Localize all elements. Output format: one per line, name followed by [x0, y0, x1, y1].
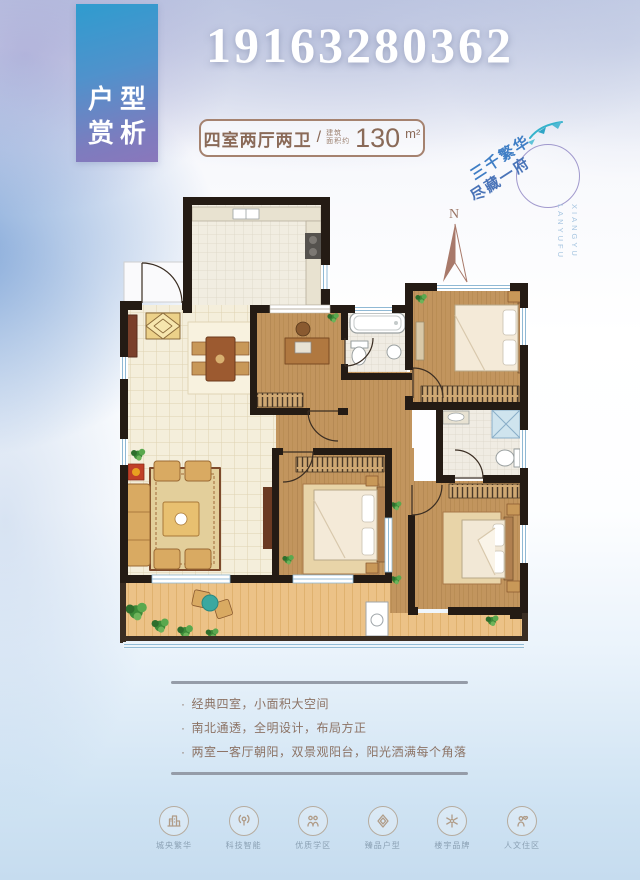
- divider-slash: /: [317, 129, 321, 147]
- area-value: 130: [355, 123, 400, 154]
- north-compass: N: [443, 207, 467, 282]
- wardrobe: [296, 457, 384, 472]
- window-kitchen: [321, 265, 330, 289]
- city-icon: [159, 806, 189, 836]
- window-bedroom-tr-right: [520, 308, 528, 345]
- unit-layout-label: 四室两厅两卫: [204, 126, 312, 151]
- compass-needle-light: [455, 224, 467, 282]
- window-living-left: [120, 439, 128, 465]
- feature-separator-top: [171, 681, 468, 684]
- floor-plan: N: [118, 192, 536, 666]
- badge-line-1: 户型: [76, 82, 158, 116]
- dining-chair: [192, 362, 207, 375]
- corridor-floor2: [276, 412, 412, 454]
- feature-item: ·南北通透，全明设计，布局方正: [181, 719, 367, 736]
- phone-number: 19163280362: [140, 16, 580, 74]
- dining-chair: [234, 342, 249, 355]
- amenity-label: 臻品户型: [351, 840, 415, 851]
- bullet-dot: ·: [181, 697, 186, 711]
- logo-latin-name: LANYUFU XIANGYU: [556, 204, 579, 260]
- slider-living-balcony: [152, 575, 230, 583]
- compass-n-label: N: [449, 207, 459, 222]
- sofa: [126, 484, 150, 566]
- toilet-tank: [514, 449, 520, 467]
- area-prefix-bottom: 面积约: [326, 138, 350, 146]
- amenity-item: 科技智能: [212, 806, 276, 851]
- amenity-label: 优质学区: [281, 840, 345, 851]
- unit-summary-box: 四室两厅两卫 / 建筑 面积约 130 m²: [199, 119, 425, 157]
- dresser: [416, 322, 424, 360]
- area-prefix-top: 建筑: [326, 130, 350, 138]
- amenity-item: 臻品户型: [351, 806, 415, 851]
- feature-item: ·两室一客厅朝阳，双景观阳台，阳光洒满每个角落: [181, 743, 467, 760]
- feature-text-3: 两室一客厅朝阳，双景观阳台，阳光洒满每个角落: [192, 745, 467, 759]
- tv-cabinet: [263, 487, 272, 549]
- toilet: [496, 450, 514, 466]
- window-bedroom-br-right: [520, 525, 528, 563]
- amenity-item: 人文住区: [490, 806, 554, 851]
- nightstand: [366, 563, 378, 573]
- armchair: [185, 461, 211, 481]
- balcony-table: [202, 595, 218, 611]
- amenity-label: 科技智能: [212, 840, 276, 851]
- window-bathroom2-right: [520, 430, 528, 468]
- nightstand: [507, 581, 520, 592]
- slider-bedroom-balcony: [293, 575, 353, 583]
- latin-line-1: LANYUFU: [556, 204, 565, 260]
- dining-chair: [192, 342, 207, 355]
- amenities-row: 城央繁华 科技智能 优质学区 臻品户型 楼宇品牌 人文住区: [142, 806, 554, 851]
- amenity-item: 优质学区: [281, 806, 345, 851]
- feature-text-2: 南北通透，全明设计，布局方正: [192, 721, 367, 735]
- balcony-right-floor: [390, 613, 524, 639]
- section-badge-text: 户型 赏析: [76, 82, 158, 150]
- armchair: [154, 461, 180, 481]
- entry-porch: [124, 262, 188, 302]
- bullet-dot: ·: [181, 721, 186, 735]
- desk-chair: [296, 322, 310, 336]
- area-prefix: 建筑 面积约: [326, 130, 350, 146]
- school-icon: [298, 806, 328, 836]
- window-bedroom-tr-top: [437, 283, 510, 291]
- wardrobe: [449, 484, 520, 498]
- amenity-label: 人文住区: [490, 840, 554, 851]
- amenity-item: 城央繁华: [142, 806, 206, 851]
- feature-item: ·经典四室，小面积大空间: [181, 695, 329, 712]
- slider-corridor-balcony: [385, 518, 392, 572]
- pillow: [362, 528, 374, 555]
- compass-needle-dark: [443, 224, 455, 282]
- pass-window-kitchen-study: [270, 305, 330, 313]
- study-wardrobe: [257, 393, 303, 407]
- feature-text-1: 经典四室，小面积大空间: [192, 697, 330, 711]
- pillow: [503, 340, 516, 365]
- layout-icon: [368, 806, 398, 836]
- bullet-dot: ·: [181, 745, 186, 759]
- nightstand: [508, 291, 522, 302]
- nightstand: [507, 504, 520, 515]
- community-icon: [507, 806, 537, 836]
- tech-icon: [229, 806, 259, 836]
- washbasin: [387, 345, 401, 359]
- brand-icon: [437, 806, 467, 836]
- dining-chair: [234, 362, 249, 375]
- amenity-item: 楼宇品牌: [420, 806, 484, 851]
- section-badge: 户型 赏析: [76, 4, 158, 162]
- amenity-label: 楼宇品牌: [420, 840, 484, 851]
- washing-machine: [366, 602, 388, 636]
- feature-separator-bottom: [171, 772, 468, 775]
- pillow: [362, 495, 374, 522]
- pillow: [503, 310, 516, 335]
- window-bathroom1: [355, 305, 392, 313]
- nightstand: [366, 476, 378, 486]
- armchair: [185, 549, 211, 569]
- wardrobe: [421, 386, 519, 404]
- area-unit: m²: [405, 126, 420, 141]
- armchair: [154, 549, 180, 569]
- amenity-label: 城央繁华: [142, 840, 206, 851]
- badge-line-2: 赏析: [76, 116, 158, 150]
- window-hall-left: [120, 357, 128, 379]
- latin-line-2: XIANGYU: [570, 204, 579, 260]
